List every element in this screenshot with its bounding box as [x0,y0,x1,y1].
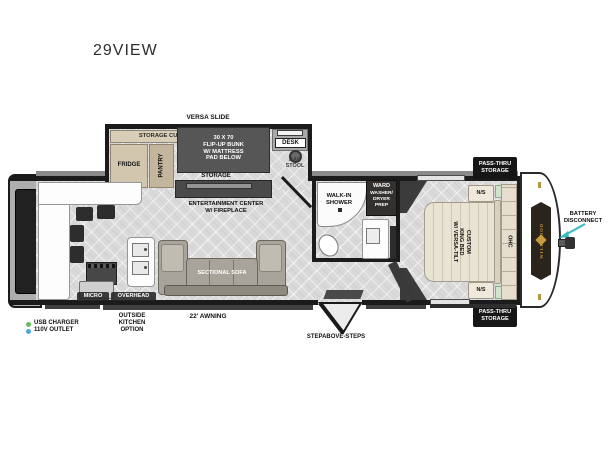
wall-top-kitchen [10,176,109,181]
pass-thru-bottom: PASS-THRU STORAGE [473,305,517,327]
desk-window [277,130,303,136]
micro-label: MICRO [84,293,103,300]
nightstand-bottom-label: N/S [468,287,494,293]
sofa-left-cushion [161,244,184,272]
shower-drain [338,208,342,212]
pass-thru-bottom-label: PASS-THRU STORAGE [479,309,511,322]
ward-label: WARD [366,183,397,190]
vanity-sink [366,228,380,244]
cap-screw [538,294,541,300]
battery-disconnect-arrow [556,221,588,241]
wall-bath-left [312,180,316,262]
faucet [144,266,147,269]
awning-label: 22' AWNING [178,313,238,321]
range-knobs [88,264,115,268]
awning-bar [45,305,100,309]
bath-mirror [390,226,396,259]
floorplan-canvas: 29VIEW VERSA SLIDE STORAGE CUBBIES FRIDG… [0,0,614,460]
sofa-right-cushion [259,244,282,272]
awning-bar [366,305,426,309]
outlet-dot [26,329,31,334]
dining-chair [97,205,115,219]
ward-sub-label: WASHER/ DRYER PREP [366,191,397,208]
versa-slide-label: VERSA SLIDE [168,114,248,122]
awning-bar [430,304,516,308]
sofa-label: SECTIONAL SOFA [186,270,258,277]
shower-label: WALK-IN SHOWER [318,193,360,207]
pantry-label: PANTRY [158,146,165,186]
dining-chair [70,225,84,242]
steps-label: STEPABOVE-STEPS [300,334,372,341]
pass-thru-top-label: PASS-THRU STORAGE [479,161,511,174]
bar-stool-label: BAR STOOL [277,157,313,170]
tv [186,183,252,189]
dining-chair [70,246,84,263]
ohc-label: OHC [506,233,513,249]
wall-slide-left [105,124,109,190]
cap-screw [538,182,541,188]
headboard [494,200,501,284]
outside-kitchen-label: OUTSIDE KITCHEN OPTION [102,313,162,334]
wall-slide-right [308,124,312,180]
page-title: 29VIEW [93,42,158,61]
outlet-label: 110V OUTLET [34,327,104,334]
nightstand-top-label: N/S [468,190,494,196]
entertainment-label: ENTERTAINMENT CENTER W/ FIREPLACE [180,201,272,215]
bunk-label: 30 X 70 FLIP-UP BUNK W/ MATTRESS PAD BEL… [179,135,268,162]
faucet [144,248,147,251]
dining-chair [76,207,93,221]
entry-step-platform [323,290,363,299]
awning-bar [103,305,313,310]
sofa-backrest [164,285,288,296]
window-top-bedroom [417,175,465,181]
entry-door-swing [314,301,366,337]
overhead-label: OVERHEAD [118,293,150,300]
pass-thru-top: PASS-THRU STORAGE [473,157,517,179]
overhead-label-box: OVERHEAD [111,292,156,301]
king-bed-label: CUSTOM KING BED W/ VERSA-TILT [451,207,471,277]
usb-charger-dot [26,322,31,327]
desk-label: DESK [275,140,306,147]
micro-label-box: MICRO [77,292,109,301]
kitchen-counter-top [38,182,142,205]
fridge-label: FRIDGE [110,162,148,169]
rear-window [15,189,38,294]
